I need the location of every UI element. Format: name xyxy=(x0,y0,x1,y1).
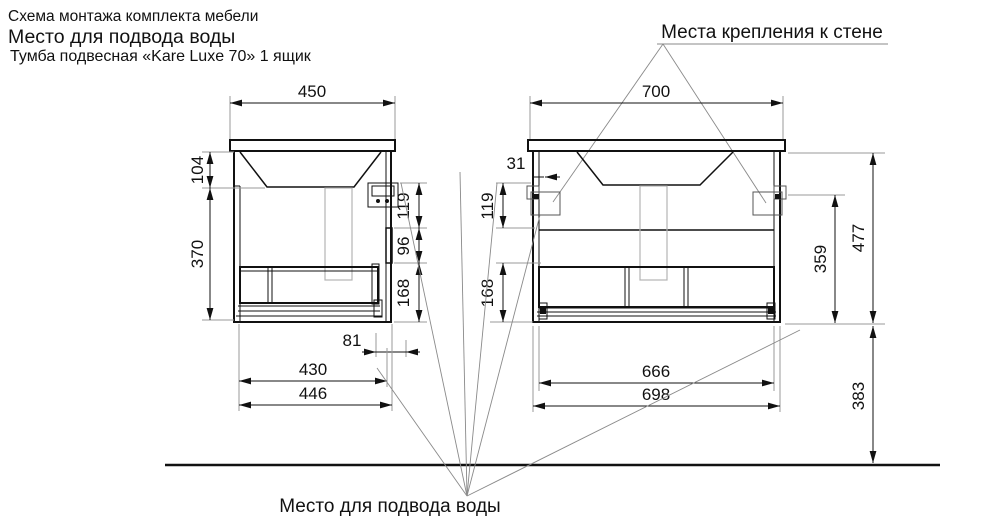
dim-front-top-width: 700 xyxy=(642,82,670,101)
dim-front-hook-height: 359 xyxy=(811,245,830,273)
side-bracket-screw-icon xyxy=(385,199,389,203)
bracket-clip-icon xyxy=(533,194,539,199)
scheme-subtitle: Место для подвода воды xyxy=(8,26,235,48)
dim-side-inner-width: 430 xyxy=(299,360,327,379)
dim-front-inner-width: 666 xyxy=(642,362,670,381)
dim-side-basin-depth: 104 xyxy=(188,156,207,184)
rail-stop-icon xyxy=(540,308,546,314)
mounting-scheme-page: Схема монтажа комплекта мебели Место для… xyxy=(0,0,1000,523)
background xyxy=(0,0,1000,523)
dim-side-handle-zone: 96 xyxy=(394,237,413,256)
rail-stop-icon xyxy=(768,308,774,314)
dim-side-outer-width: 446 xyxy=(299,384,327,403)
side-bracket-screw-icon xyxy=(376,199,380,203)
wall-mount-label: Места крепления к стене xyxy=(661,22,883,43)
product-name: Тумба подвесная «Kare Luxe 70» 1 ящик xyxy=(10,48,312,65)
dim-front-outer-width: 698 xyxy=(642,385,670,404)
technical-drawing: Схема монтажа комплекта мебели Место для… xyxy=(0,0,1000,523)
dim-side-bottom-zone: 168 xyxy=(394,279,413,307)
dim-side-body-height: 370 xyxy=(188,240,207,268)
dim-front-edge-offset: 31 xyxy=(507,154,526,173)
dim-side-back-offset: 81 xyxy=(343,331,362,350)
bracket-clip-icon xyxy=(775,194,781,199)
scheme-title: Схема монтажа комплекта мебели xyxy=(8,8,258,25)
dim-front-floor-gap: 383 xyxy=(849,382,868,410)
dim-front-body-height: 477 xyxy=(849,224,868,252)
dim-side-top-width: 450 xyxy=(298,82,326,101)
water-supply-label: Место для подвода воды xyxy=(279,496,500,517)
